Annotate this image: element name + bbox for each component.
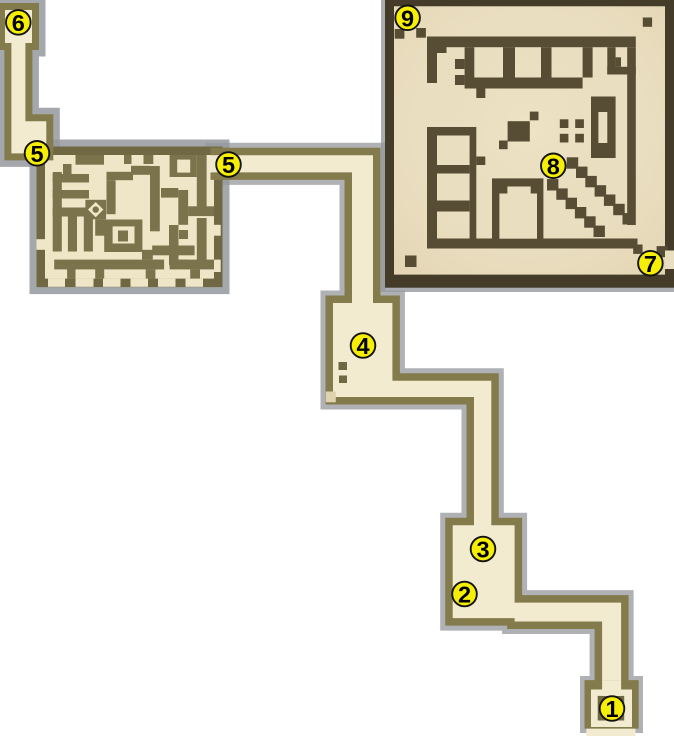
svg-text:2: 2 bbox=[458, 582, 471, 608]
svg-text:8: 8 bbox=[547, 153, 560, 179]
svg-text:7: 7 bbox=[644, 251, 657, 277]
svg-text:1: 1 bbox=[605, 696, 618, 722]
svg-text:4: 4 bbox=[356, 333, 369, 359]
svg-text:5: 5 bbox=[222, 152, 235, 178]
svg-text:6: 6 bbox=[12, 10, 25, 36]
svg-text:5: 5 bbox=[30, 141, 43, 167]
svg-text:3: 3 bbox=[476, 537, 489, 563]
svg-text:9: 9 bbox=[401, 5, 414, 31]
